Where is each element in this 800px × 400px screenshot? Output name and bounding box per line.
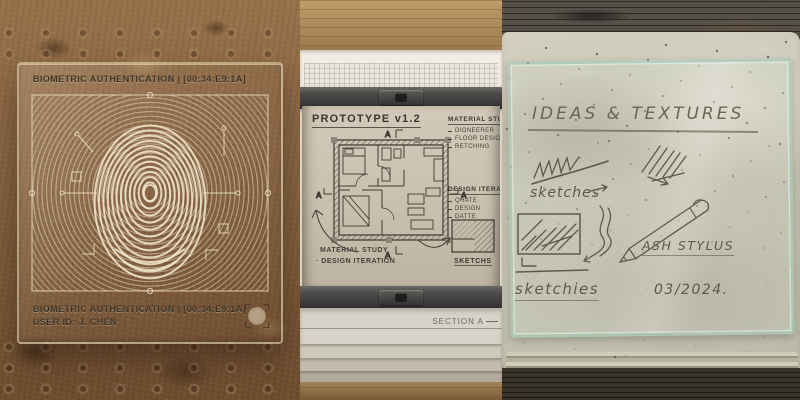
scanner-rings [19, 64, 281, 342]
material-item-2: FLOOR DESIGN [455, 136, 500, 142]
paper-stack-2 [300, 358, 502, 371]
date-label: 03/2024. [654, 282, 729, 298]
sketchies-label: sketchies [515, 280, 599, 301]
biometric-user-id-text: USER ID: J. CHEN [33, 317, 117, 327]
scribble-zigzag [532, 157, 608, 184]
biometric-footer-auth-text: BIOMETRIC AUTHENTICATION | [00:34:E9:1A] [33, 304, 246, 314]
stylus-icon [616, 196, 711, 267]
small-arrow-marks [590, 177, 668, 191]
scribble-hatch-strokes [642, 146, 686, 181]
plan-partitions [339, 145, 404, 235]
material-study-block: MATERIAL STUDY DIONEERER FLOOR DESIGN RE… [448, 116, 500, 152]
biometric-panel: BIOMETRIC AUTHENTICATION | [00:34:E9:1A]… [0, 0, 300, 400]
dirt-pebbles-top [0, 24, 300, 64]
blueprint-panel: PROTOTYPE v1.2 [300, 0, 502, 400]
seal-icon [245, 304, 269, 328]
design-item-2: DESIGN [455, 206, 480, 212]
section-rule-line [300, 328, 502, 329]
section-dash [486, 321, 498, 322]
wood-desk-bottom [300, 382, 502, 400]
sketch-box-label: SKETCHS [454, 258, 492, 266]
clipboard-clip [379, 90, 423, 105]
material-item-3: RETCHING [455, 144, 490, 150]
note-material-study: MATERIAL STUDY [320, 247, 388, 254]
material-study-heading: MATERIAL STUDY [448, 116, 500, 125]
journal-hatch-box [516, 214, 588, 272]
note-design-iteration: · DESIGN ITERATION [316, 258, 395, 265]
paper-stack-1 [300, 344, 502, 358]
design-iteration-block: DESIGN ITERATION QHATE DESIGN DATTE [448, 186, 500, 222]
fingerprint-scanner-graphic [19, 64, 281, 342]
journal-title: IDEAS & TEXTURES [532, 104, 744, 124]
annotation-arrows [312, 210, 450, 252]
design-iteration-heading: DESIGN ITERATION [448, 186, 500, 195]
clipboard-rail-bottom [300, 286, 502, 310]
dirt-pebbles-bottom [0, 338, 300, 400]
biometric-header-text: BIOMETRIC AUTHENTICATION | [00:34:E9:1A] [33, 74, 246, 84]
section-title-paper: SECTION A [300, 308, 502, 344]
material-item-1: DIONEERER [455, 128, 494, 134]
journal-panel: IDEAS & TEXTURES sketches sketchies ASH … [502, 0, 800, 400]
clipboard-clip-bottom [379, 290, 423, 305]
section-label: SECTION A [432, 317, 484, 326]
grid-paper [304, 63, 498, 89]
sketches-label: sketches [530, 185, 600, 201]
ribbon-squiggle [584, 206, 611, 262]
triptych-collage: BIOMETRIC AUTHENTICATION | [00:34:E9:1A]… [0, 0, 800, 400]
drawing-sheet: PROTOTYPE v1.2 [302, 106, 500, 290]
stylus-label: ASH STYLUS [642, 238, 734, 256]
design-item-3: DATTE [455, 214, 476, 220]
section-marker-top: A [385, 130, 391, 139]
section-marker-left: A [316, 191, 322, 200]
design-item-1: QHATE [455, 198, 477, 204]
biometric-glass-plate: BIOMETRIC AUTHENTICATION | [00:34:E9:1A]… [17, 62, 283, 344]
plan-furniture [343, 148, 443, 229]
sketch-hatch-box [452, 220, 494, 252]
